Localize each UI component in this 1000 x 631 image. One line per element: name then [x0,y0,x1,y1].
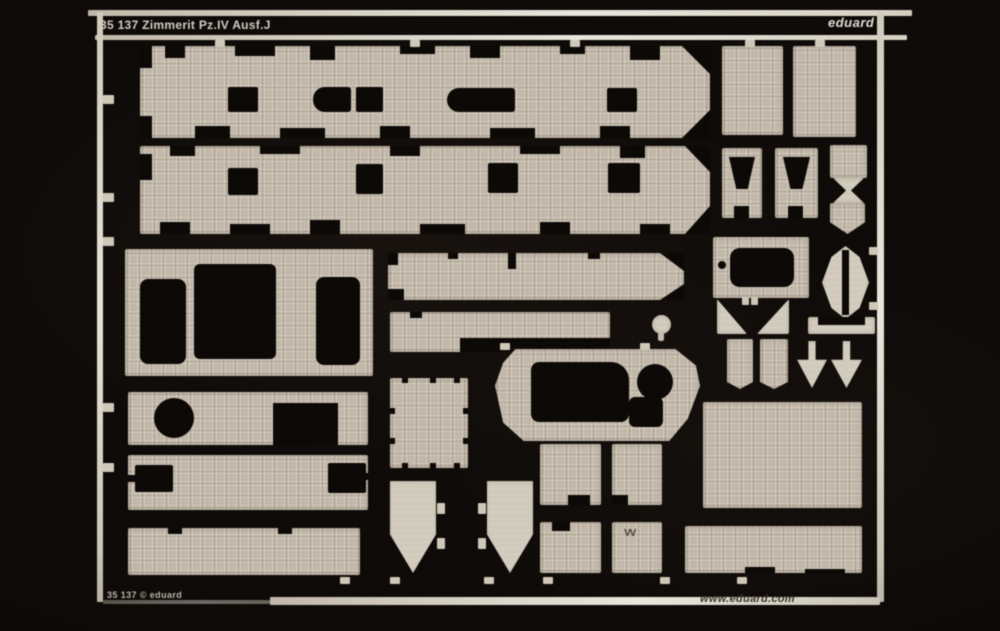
edge-notch [260,146,300,154]
pe-part-side-skirt-strip [388,253,684,300]
sprue-tab [103,463,114,472]
pe-part-small-plate-1 [540,444,601,505]
etched-hole [356,164,383,194]
pe-part-bottom-strip [685,526,862,573]
sprue-tab [543,577,553,584]
edge-notch [310,46,335,60]
etched-hole [730,248,794,287]
etched-hole [316,277,360,365]
sprue-tab [751,297,758,305]
sprue-tab [340,577,350,584]
etched-hole [488,163,518,193]
edge-notch [140,154,152,180]
pe-part-bracket-1 [722,148,762,218]
pe-part-engine-deck-panel [125,249,373,376]
sprue-tab [742,297,749,305]
edge-notch [400,46,435,54]
pe-part-small-square [830,145,867,178]
etched-vv-mark: VV [624,528,635,539]
edge-notch [380,126,410,138]
edge-notch [165,46,185,58]
etched-hole [356,87,383,112]
edge-tick [430,463,436,468]
etched-hole [154,398,194,438]
sprue-tab [660,577,670,584]
brand-logo: eduard [828,15,874,30]
pe-part-roof-panel [703,402,862,508]
edge-notch [470,46,500,58]
edge-tick [454,378,460,383]
edge-notch [160,222,190,234]
edge-notch [420,224,465,234]
sprue-tab [570,40,580,47]
frame-line-bottom-left [103,600,270,604]
pe-part-schurzen-plate-2 [793,46,856,137]
sprue-tab [410,40,420,47]
edge-notch [273,403,338,445]
sprue-tab [215,40,225,47]
sprue-tab [103,403,114,412]
corner-cut [140,116,152,138]
etched-hole [607,88,637,112]
edge-notch [168,528,182,534]
edge-notch [278,528,292,534]
pe-part-bowtie [833,178,864,203]
edge-tick [390,438,395,444]
edge-notch [734,206,749,218]
catalog-title: 35 137 Zimmerit Pz.IV Ausf.J [100,18,271,32]
edge-tick [402,378,408,383]
frame-line-right [877,12,884,602]
pe-part-mudflap-left [389,481,437,573]
edge-notch [310,220,340,234]
edge-notch [630,46,660,60]
etched-hole [608,163,640,193]
edge-notch [280,128,325,138]
edge-notch [170,146,195,156]
corner-cut [682,110,710,138]
edge-notch [390,146,420,156]
pe-part-arrow-1 [797,341,827,388]
pe-part-hull-panel-bottom [140,146,710,234]
sprue-tab [815,40,825,47]
pe-part-vision-port-frame [713,237,809,298]
sprue-tab [500,343,510,350]
corner-cut [388,289,404,300]
pe-part-triangle-right [757,299,789,334]
etched-hole [140,279,186,364]
etched-hole [531,362,629,422]
corner-cut [685,146,710,172]
edge-notch [818,317,865,325]
pe-part-schurzen-plate-1 [722,46,783,135]
sprue-tab [390,577,400,584]
pe-part-leaf-diamond [822,246,869,319]
corner-cut [140,46,152,68]
sprue-tab [437,503,445,514]
pe-part-square-plate [390,378,468,468]
etched-hole [637,364,673,400]
edge-notch [508,253,516,269]
edge-tick [454,463,460,468]
pe-part-small-plate-3 [540,522,601,573]
edge-notch [788,206,803,218]
edge-tick [402,463,408,468]
sprue-tab [745,40,755,47]
corner-cut [388,253,398,265]
etched-hole [629,397,663,427]
edge-notch [448,253,458,259]
edge-slot [128,475,136,482]
pe-part-bracket-2 [775,148,818,218]
footer-left-text: 35 137 © eduard [107,590,182,600]
etched-hole [228,168,258,195]
pe-part-small-plate-4: VV [612,522,662,573]
etched-hole [194,264,276,359]
edge-notch [745,567,775,573]
pe-part-arrow-2 [831,341,862,388]
sprue-tab [103,237,114,246]
pe-part-hull-panel-top [140,46,710,138]
etched-hole [228,87,258,112]
edge-notch [568,495,590,505]
pe-part-glacis-plate [495,349,700,441]
edge-tick [463,438,468,444]
etched-hole [783,157,810,189]
edge-notch [235,46,275,56]
edge-notch [410,312,422,318]
sprue-tab [484,577,494,584]
edge-notch [560,46,585,54]
edge-notch [552,522,570,531]
etched-hole [718,261,726,269]
pe-part-pointed-rect-1 [727,339,753,389]
pe-part-u-bracket [808,317,875,334]
etched-hole [447,88,515,112]
edge-notch [640,224,670,234]
etched-sheet: 35 137 Zimmerit Pz.IV Ausf.J eduard 35 1… [0,0,1000,631]
edge-tick [390,408,395,414]
sprue-tab [103,95,114,104]
edge-notch [805,569,845,573]
frame-line-top-outer [88,10,912,16]
edge-notch [540,222,570,234]
etched-hole [135,465,173,492]
corner-cut [685,206,710,234]
edge-slot [360,473,368,480]
sprue-tab [478,503,486,514]
edge-notch [195,126,230,138]
pe-sheet-photo: 35 137 Zimmerit Pz.IV Ausf.J eduard 35 1… [0,0,1000,631]
pe-part-zimmerit-strip [128,528,360,575]
sprue-tab [103,193,114,202]
sprue-tab [869,247,878,255]
corner-cut [660,253,684,271]
sprue-tab [869,302,878,310]
edge-notch [230,224,270,234]
edge-notch [612,495,628,505]
pe-part-mudflap-right [486,481,534,573]
pe-part-slotted-panel [128,455,368,510]
edge-notch [490,128,535,138]
sprue-tab [640,343,650,350]
sprue-tab [737,577,747,584]
etched-hole [729,157,755,189]
edge-notch [600,126,630,138]
pe-part-pointed-rect-2 [760,339,788,389]
edge-tick [463,408,468,414]
corner-cut [660,284,684,300]
pe-part-pointed-plate [830,203,865,234]
corner-cut [682,46,710,74]
pe-part-round-cap-stem [658,332,664,341]
pe-part-hatch-panel [128,392,368,445]
pe-part-small-plate-2 [612,444,662,505]
edge-tick [430,378,436,383]
sprue-tab [478,538,486,549]
edge-notch [620,146,645,158]
edge-notch [520,146,560,154]
footer-website: www.eduard.com [700,593,795,605]
sprue-tab [437,538,445,549]
edge-notch [588,253,600,259]
center-slot [842,250,849,315]
etched-hole [313,87,351,112]
